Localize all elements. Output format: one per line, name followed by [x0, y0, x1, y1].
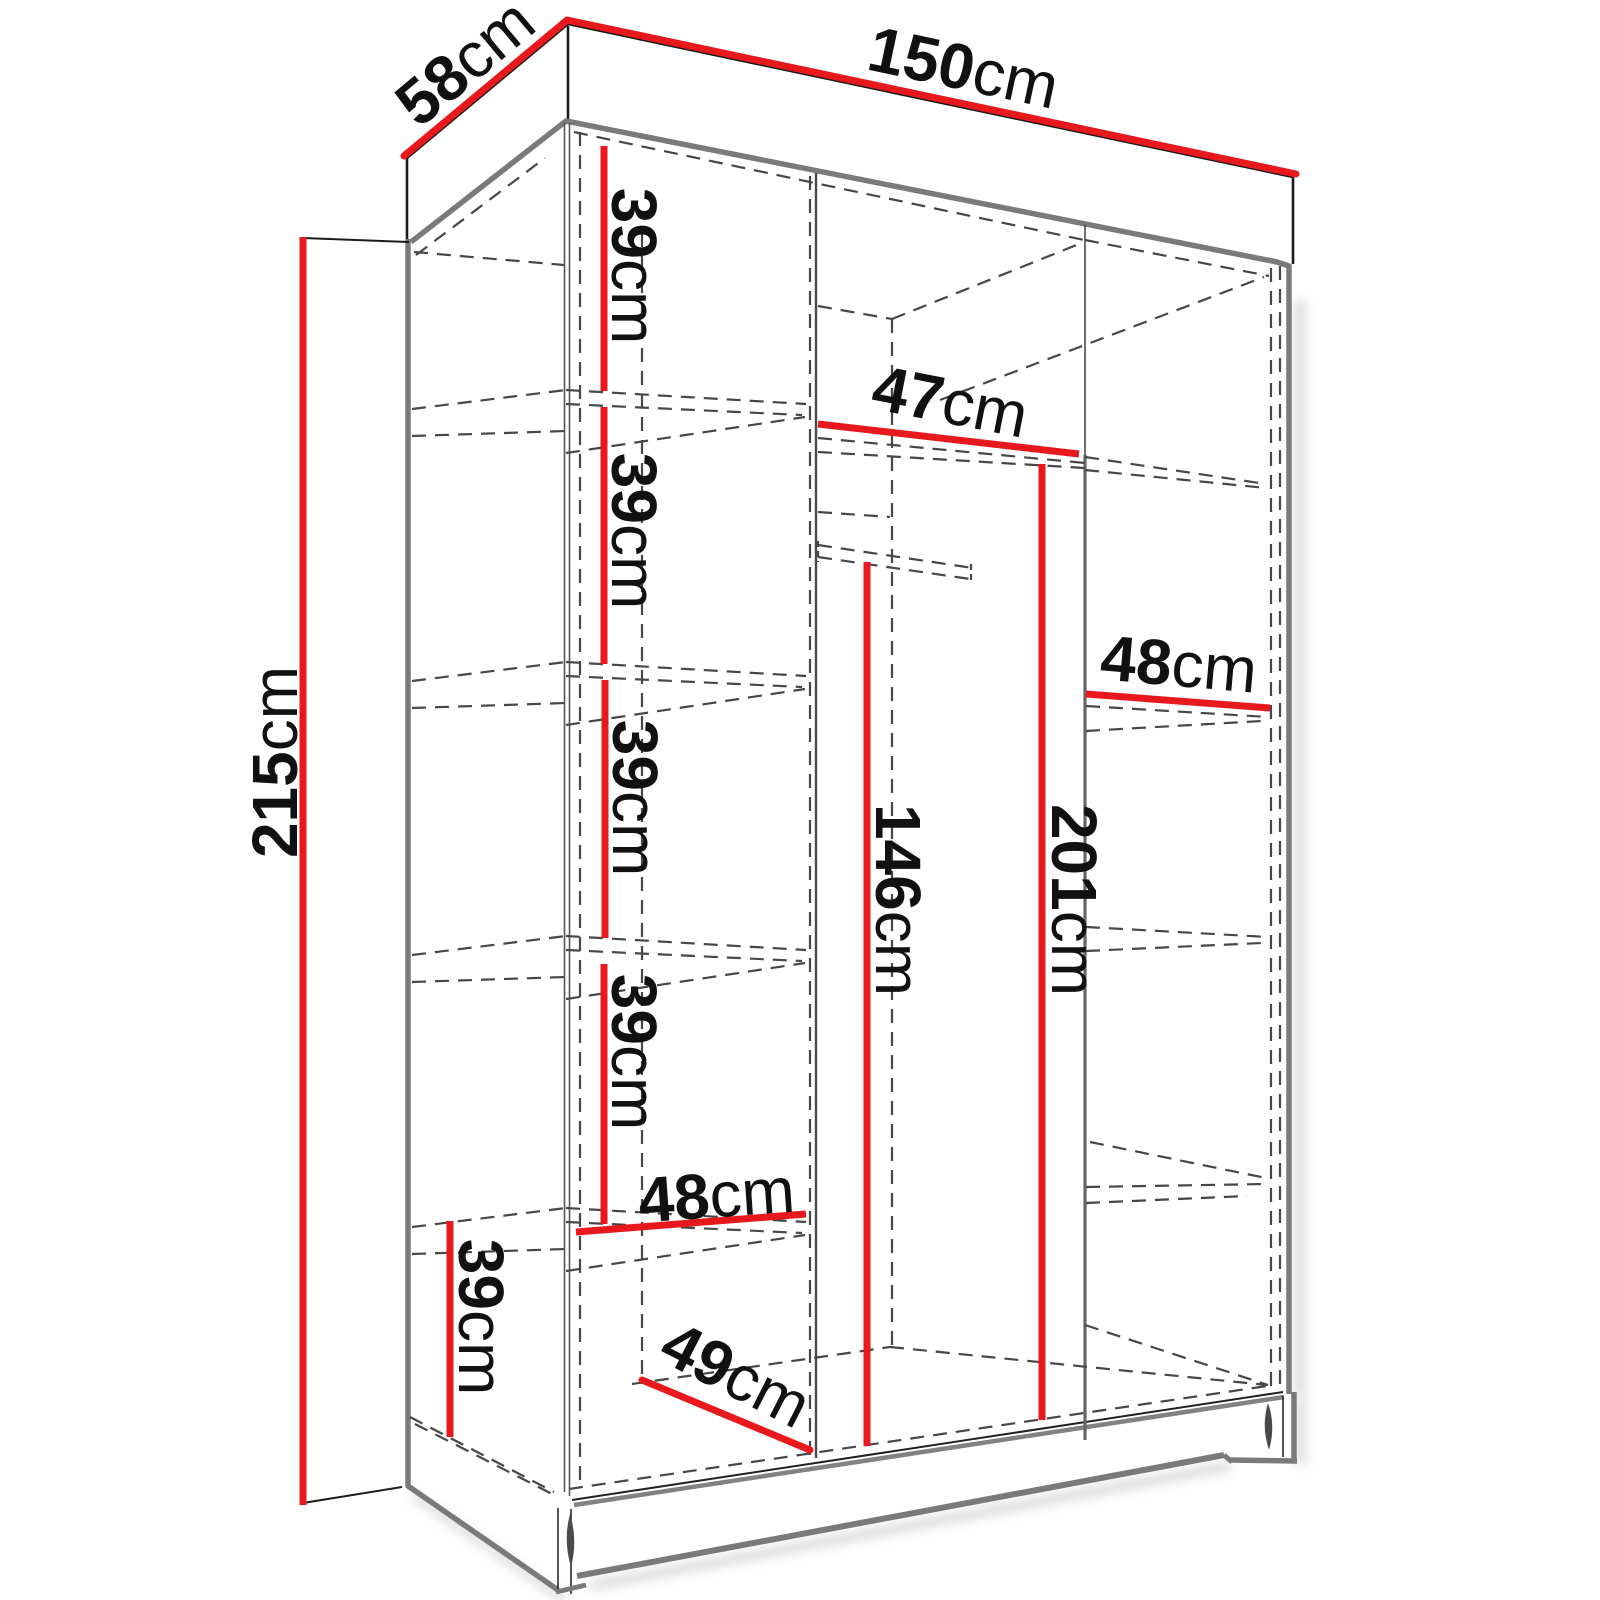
- svg-text:201cm: 201cm: [1038, 804, 1110, 996]
- svg-text:39cm: 39cm: [599, 720, 671, 877]
- svg-text:48cm: 48cm: [636, 1154, 797, 1237]
- svg-text:39cm: 39cm: [598, 188, 670, 345]
- svg-text:215cm: 215cm: [239, 666, 311, 858]
- svg-text:39cm: 39cm: [445, 1239, 517, 1396]
- svg-text:146cm: 146cm: [862, 804, 934, 996]
- svg-text:39cm: 39cm: [598, 453, 670, 610]
- svg-text:48cm: 48cm: [1098, 621, 1260, 706]
- svg-text:39cm: 39cm: [598, 974, 670, 1131]
